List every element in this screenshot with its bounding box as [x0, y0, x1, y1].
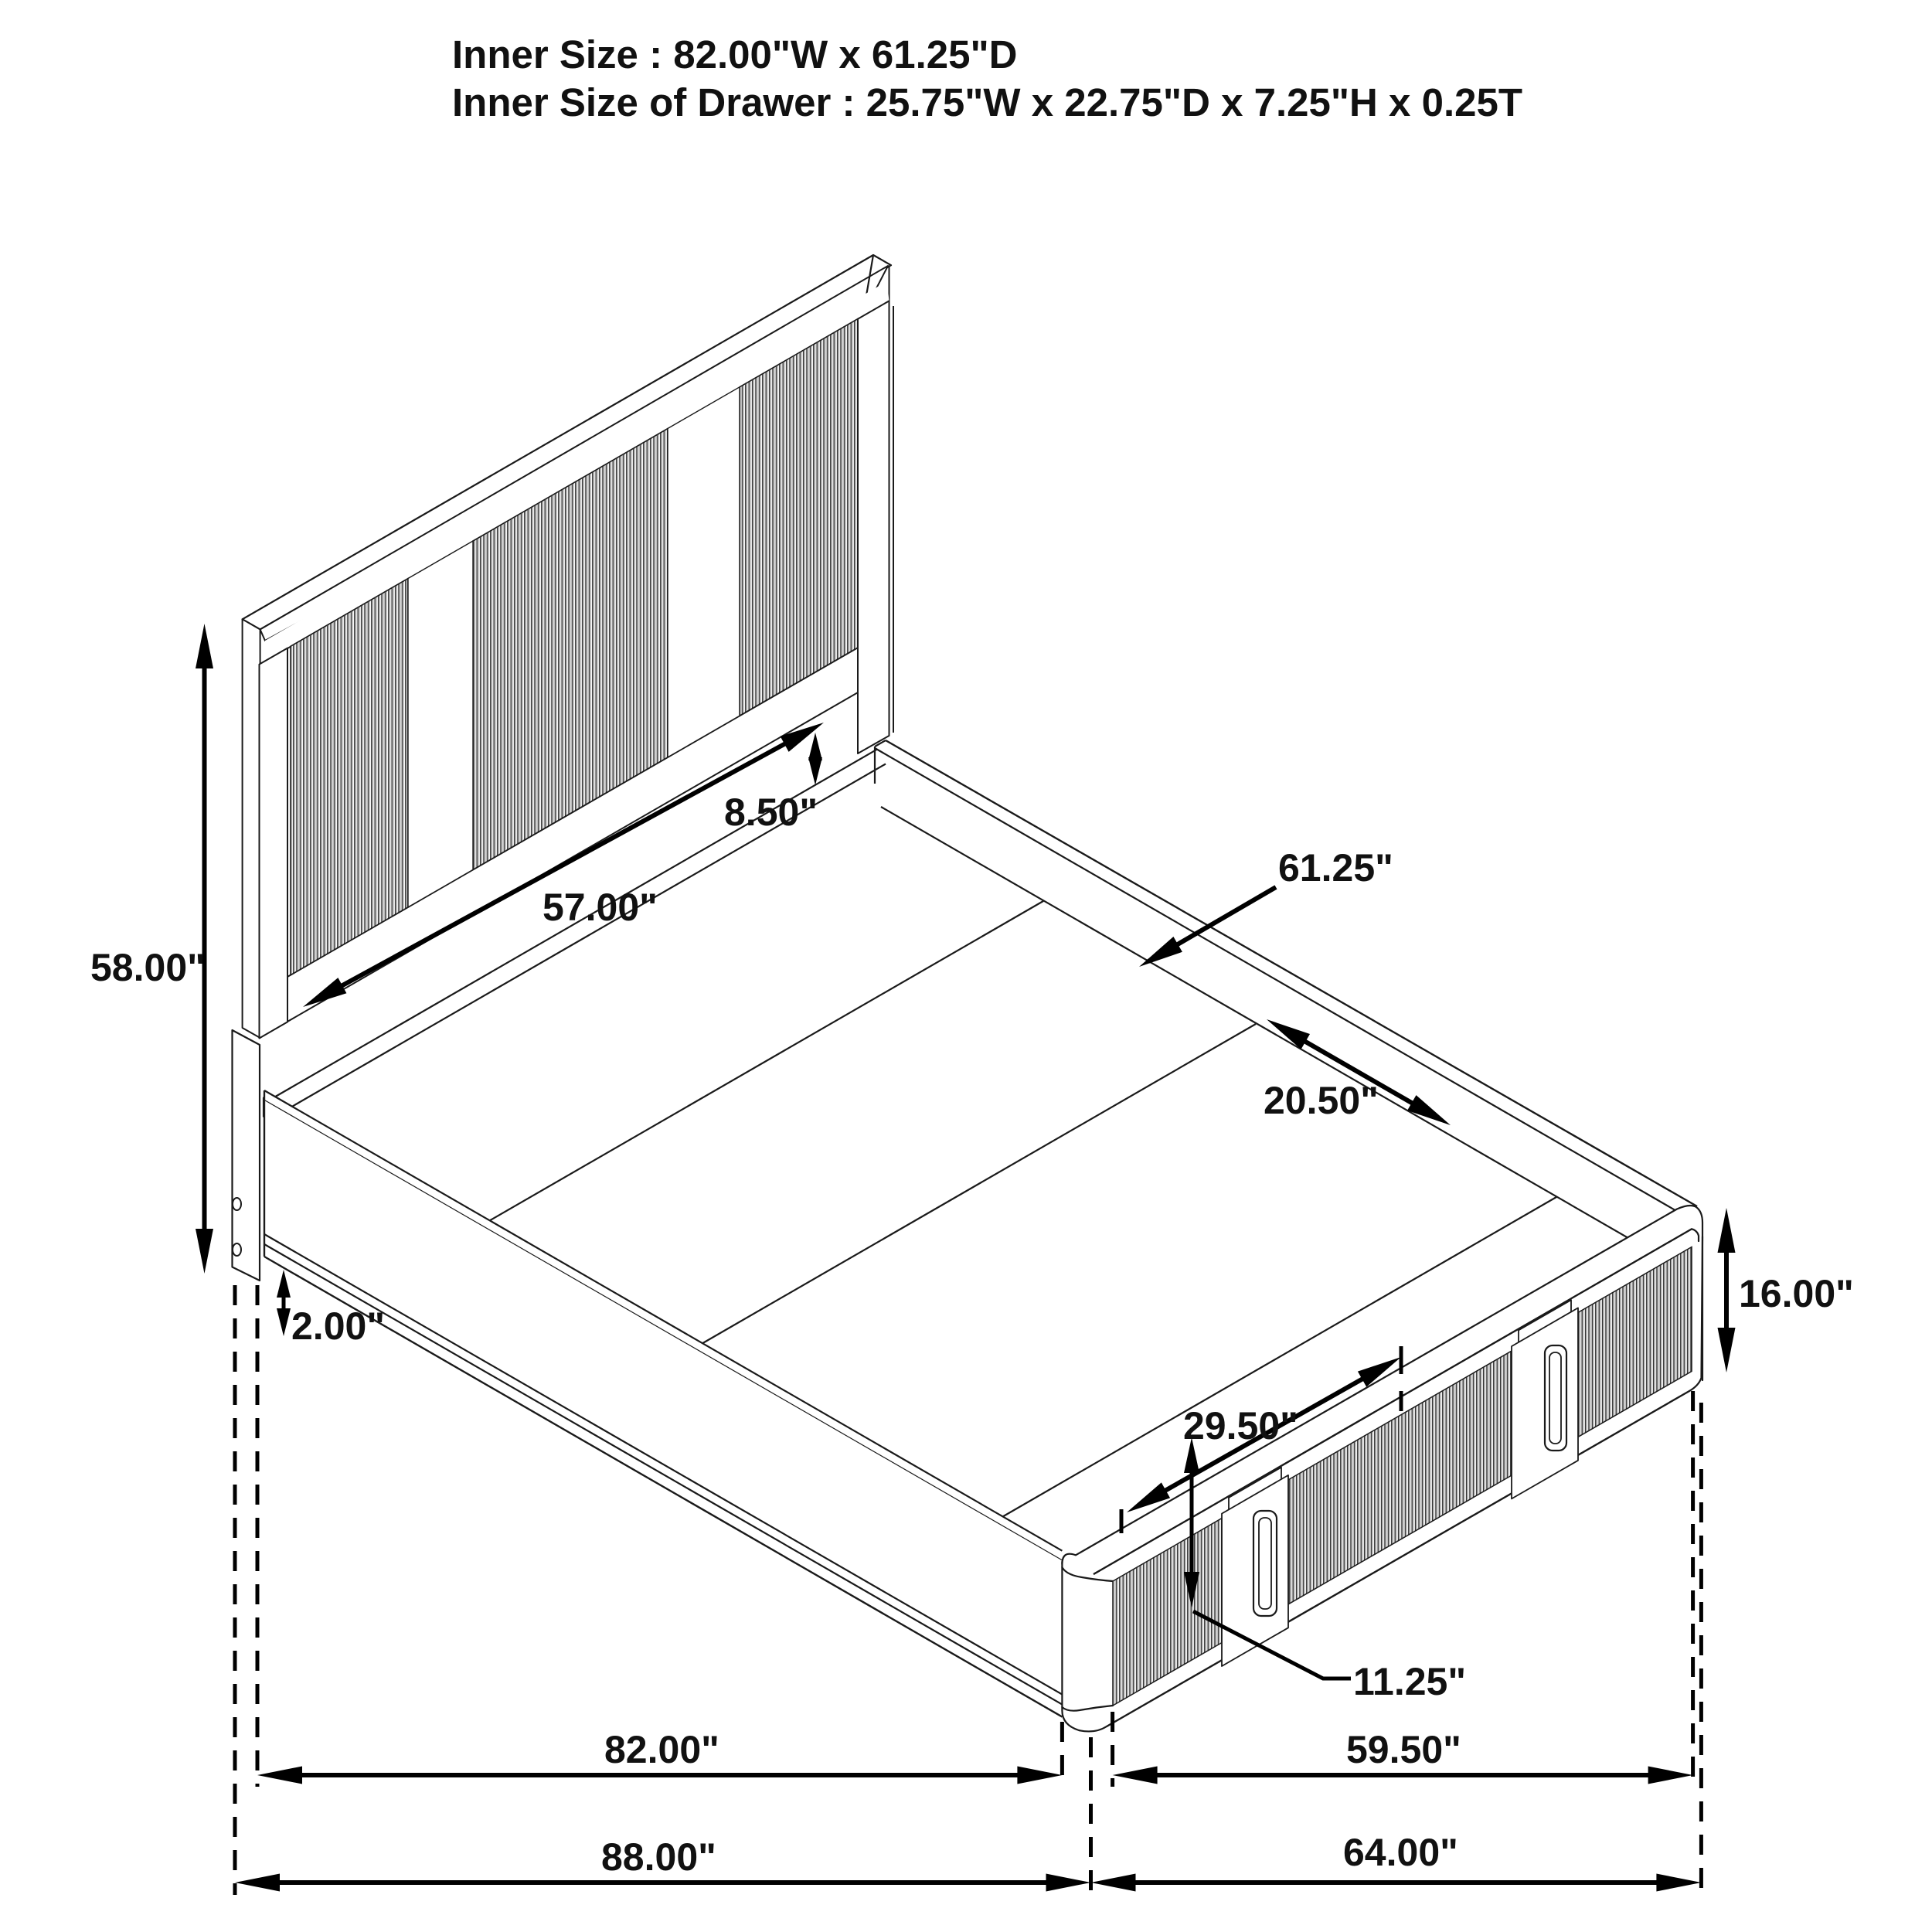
svg-text:11.25": 11.25" — [1353, 1660, 1466, 1703]
svg-text:82.00": 82.00" — [604, 1728, 719, 1771]
svg-text:57.00": 57.00" — [543, 886, 658, 929]
svg-text:64.00": 64.00" — [1343, 1831, 1458, 1874]
svg-text:Inner Size of Drawer : 25.75"W: Inner Size of Drawer : 25.75"W x 22.75"D… — [452, 80, 1522, 124]
svg-text:61.25": 61.25" — [1278, 846, 1393, 889]
svg-text:2.00": 2.00" — [291, 1304, 385, 1348]
svg-text:29.50": 29.50" — [1183, 1404, 1298, 1447]
svg-text:58.00": 58.00" — [90, 946, 206, 989]
svg-text:59.50": 59.50" — [1346, 1728, 1461, 1771]
svg-text:88.00": 88.00" — [601, 1835, 716, 1879]
svg-text:20.50": 20.50" — [1264, 1079, 1379, 1122]
svg-text:Inner Size : 82.00"W x 61.25"D: Inner Size : 82.00"W x 61.25"D — [452, 32, 1018, 77]
svg-text:16.00": 16.00" — [1739, 1272, 1854, 1315]
svg-text:8.50": 8.50" — [724, 791, 818, 834]
